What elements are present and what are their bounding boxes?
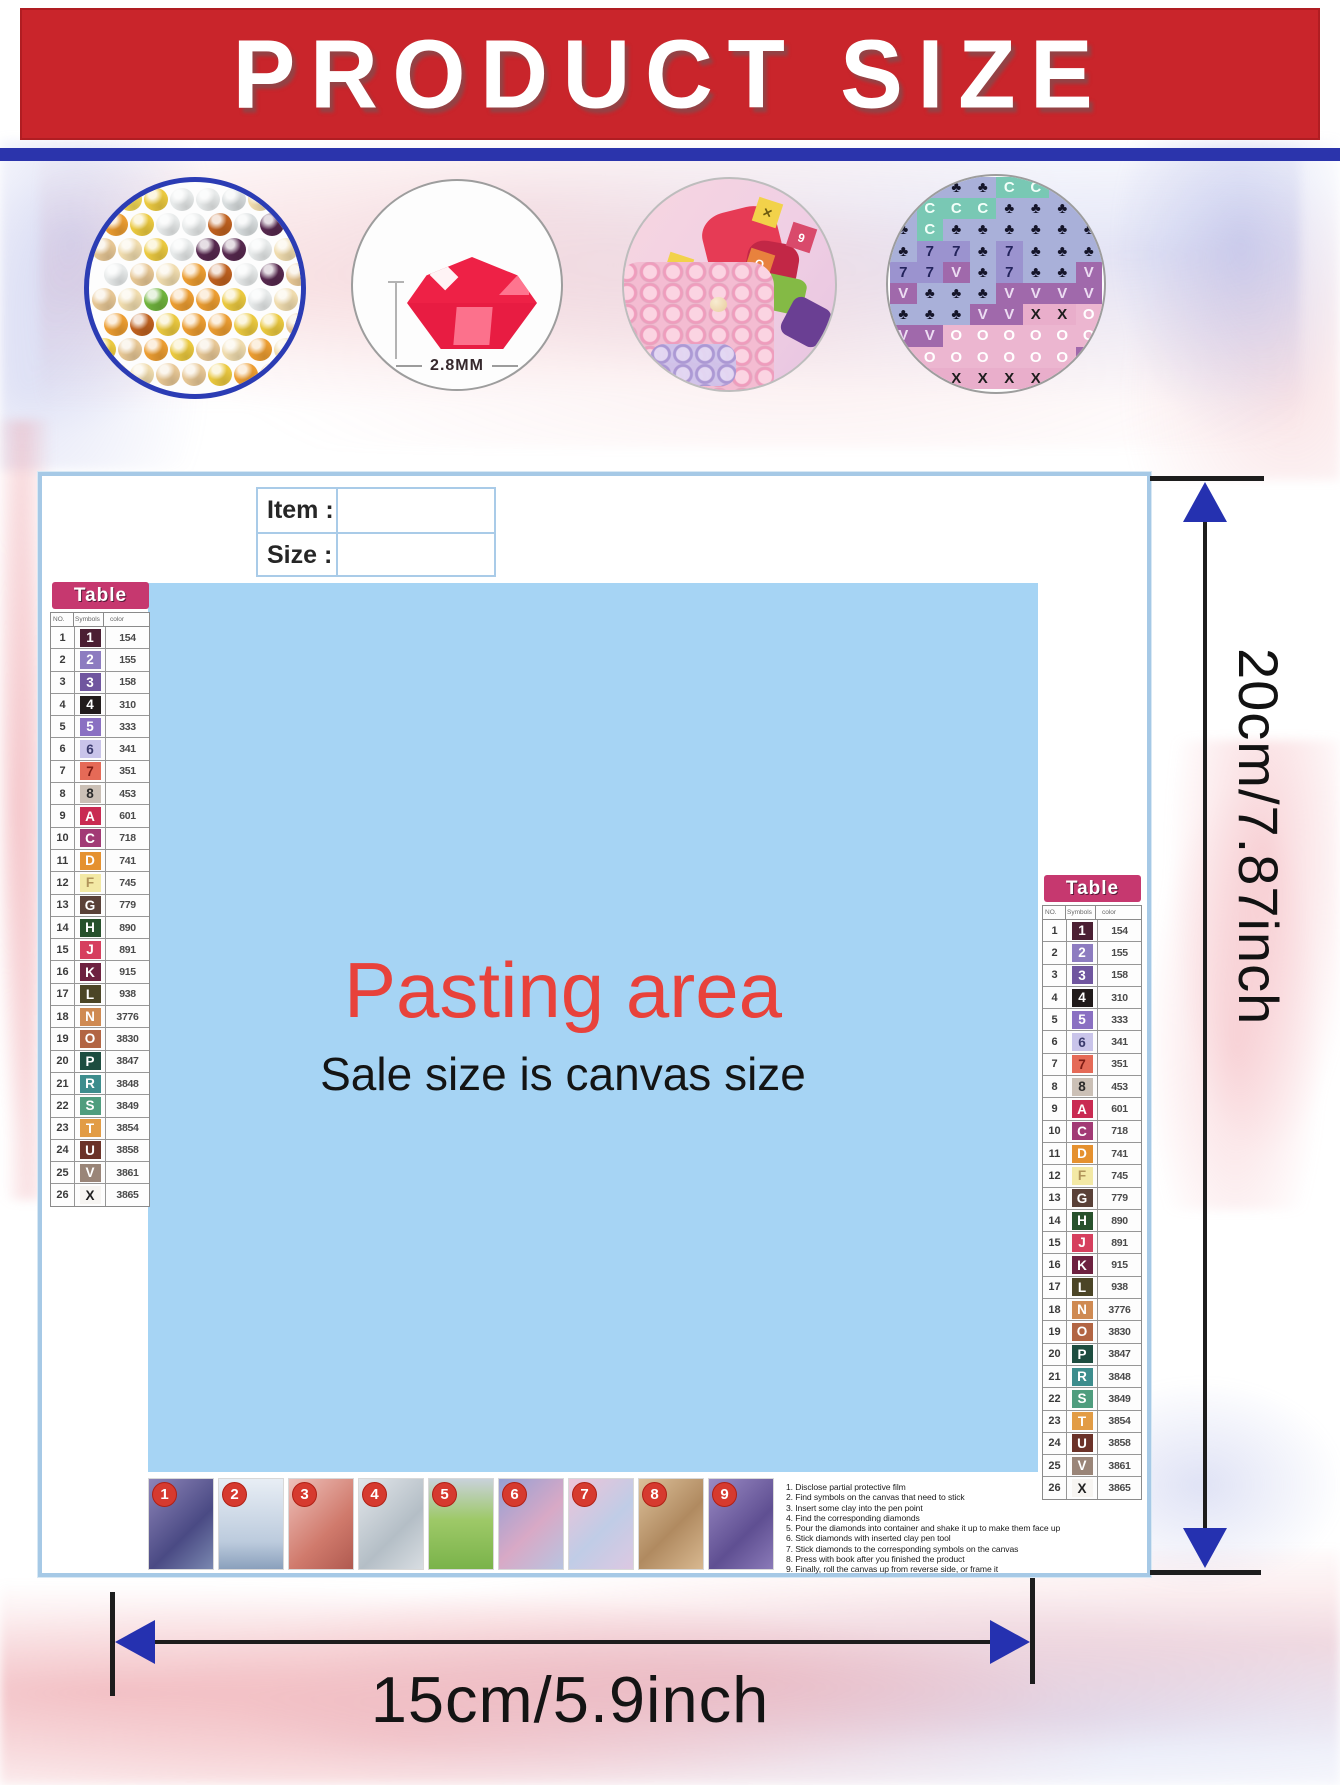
- color-table-title-right: Table: [1044, 875, 1141, 902]
- color-table-row: 16K915: [51, 961, 149, 983]
- color-table-symbol: R: [75, 1073, 106, 1094]
- diamond-bead: [144, 188, 168, 211]
- color-table-code: 718: [1098, 1121, 1141, 1142]
- color-table-symbol: 4: [1067, 987, 1098, 1008]
- color-table-symbol-chip: L: [1072, 1278, 1093, 1296]
- item-row: Item :: [258, 489, 494, 534]
- color-table-code: 3776: [1098, 1299, 1141, 1320]
- diamond-bead: [196, 188, 220, 211]
- color-table-row: 66341: [1043, 1031, 1141, 1053]
- color-table-code: 453: [106, 783, 149, 804]
- diamond-bead: [92, 338, 116, 361]
- color-table-no: 24: [1043, 1433, 1067, 1454]
- diamond-bead: [248, 188, 272, 211]
- color-table-symbol: L: [1067, 1277, 1098, 1298]
- step-thumbnail: 6: [498, 1478, 564, 1570]
- symbol-cell: X: [890, 368, 917, 389]
- instruction-line: 3. Insert some clay into the pen point: [786, 1503, 1048, 1513]
- diamond-bead: [182, 263, 206, 286]
- symbol-cell: C: [917, 219, 944, 240]
- color-table-row: 22155: [51, 649, 149, 671]
- diamond-bead: [208, 313, 232, 336]
- item-label: Item :: [258, 489, 338, 532]
- color-table-code: 3849: [106, 1095, 149, 1116]
- step-number-badge: 7: [572, 1482, 597, 1507]
- color-table-symbol-chip: X: [80, 1186, 101, 1204]
- symbol-row: XXXXXXXY: [890, 368, 1102, 389]
- symbol-cell: ♣: [1076, 241, 1103, 262]
- color-table-symbol: S: [1067, 1388, 1098, 1409]
- color-table-row: 20P3847: [1043, 1344, 1141, 1366]
- color-table-symbol-chip: 5: [80, 718, 101, 736]
- color-table-row: 19O3830: [51, 1028, 149, 1050]
- color-table-no: 18: [1043, 1299, 1067, 1320]
- divider-bar: [0, 148, 1340, 161]
- step-number-badge: 9: [712, 1482, 737, 1507]
- diamond-bead: [118, 338, 142, 361]
- step-number-badge: 4: [362, 1482, 387, 1507]
- color-table-no: 2: [51, 649, 75, 670]
- symbol-cell: 7: [996, 262, 1023, 283]
- color-table-header-cell: color: [1096, 906, 1141, 919]
- color-table-symbol-chip: 2: [80, 651, 101, 669]
- step-thumbnail: 5: [428, 1478, 494, 1570]
- color-table-code: 3854: [1098, 1411, 1141, 1432]
- color-table-symbol-chip: H: [80, 919, 101, 937]
- color-table-symbol: F: [75, 872, 106, 893]
- color-table-no: 13: [1043, 1188, 1067, 1209]
- color-table-row: 88453: [1043, 1076, 1141, 1098]
- diamond-bead: [170, 338, 194, 361]
- color-table-symbol: D: [75, 850, 106, 871]
- color-table-symbol-chip: 6: [1072, 1033, 1093, 1051]
- color-table-no: 26: [1043, 1477, 1067, 1498]
- color-table-code: 351: [1098, 1054, 1141, 1075]
- color-table-code: 601: [1098, 1098, 1141, 1119]
- height-dimension-label: 20cm/7.87inch: [1226, 648, 1291, 1208]
- item-value-cell: [338, 489, 494, 532]
- color-table-code: 745: [1098, 1165, 1141, 1186]
- color-table-no: 12: [51, 872, 75, 893]
- symbol-cell: O: [996, 347, 1023, 368]
- step-number-badge: 1: [152, 1482, 177, 1507]
- diamond-bead: [248, 238, 272, 261]
- symbol-cell: X: [970, 368, 997, 389]
- symbol-row: VVOOOOOO: [890, 325, 1102, 346]
- color-table-no: 5: [1043, 1009, 1067, 1030]
- color-table-code: 3858: [106, 1140, 149, 1161]
- color-table-symbol: C: [1067, 1121, 1098, 1142]
- color-table-symbol-chip: C: [1072, 1122, 1093, 1140]
- diamond-bead-row: [89, 188, 301, 213]
- symbol-cell: C: [917, 198, 944, 219]
- color-table-code: 779: [106, 895, 149, 916]
- color-table-no: 22: [51, 1095, 75, 1116]
- color-table-code: 155: [1098, 942, 1141, 963]
- color-table-no: 4: [1043, 987, 1067, 1008]
- symbol-cell: ♣: [1023, 219, 1050, 240]
- color-table-title-left: Table: [52, 582, 149, 609]
- background-texture: [1090, 140, 1340, 480]
- symbol-cell: ♣: [917, 304, 944, 325]
- color-table-symbol-chip: F: [80, 874, 101, 892]
- color-table-code: 891: [106, 939, 149, 960]
- color-table-row: 25V3861: [51, 1162, 149, 1184]
- symbol-cell: C: [970, 198, 997, 219]
- symbol-cell: ♣: [970, 241, 997, 262]
- diamond-bead: [156, 213, 180, 236]
- color-table-code: 779: [1098, 1188, 1141, 1209]
- color-table-code: 915: [1098, 1254, 1141, 1275]
- color-table-symbol: C: [75, 828, 106, 849]
- color-table-symbol: 7: [1067, 1054, 1098, 1075]
- color-table-symbol-chip: G: [1072, 1189, 1093, 1207]
- color-table-no: 4: [51, 694, 75, 715]
- diamond-bead: [234, 213, 258, 236]
- color-table-no: 9: [1043, 1098, 1067, 1119]
- color-table-symbol-chip: O: [80, 1030, 101, 1048]
- gem-size-photo: 2.8MM: [351, 179, 563, 391]
- color-table-row: 9A601: [51, 805, 149, 827]
- color-table-row: 11D741: [51, 850, 149, 872]
- color-table-code: 745: [106, 872, 149, 893]
- instruction-line: 5. Pour the diamonds into container and …: [786, 1523, 1048, 1533]
- color-table-symbol-chip: O: [1072, 1323, 1093, 1341]
- color-table-symbol-chip: N: [80, 1008, 101, 1026]
- diamond-bead-row: [101, 313, 306, 338]
- symbol-cell: 7: [917, 241, 944, 262]
- step-thumbnail: 2: [218, 1478, 284, 1570]
- vertical-dimension-line: [1203, 498, 1207, 1554]
- diamond-bead: [144, 338, 168, 361]
- color-table-row: 16K915: [1043, 1254, 1141, 1276]
- color-table-symbol: 6: [1067, 1031, 1098, 1052]
- measure-dash: [396, 365, 422, 367]
- symbol-row: ♣♣♣VVXXO: [890, 304, 1102, 325]
- color-table-no: 26: [51, 1184, 75, 1205]
- symbol-cell: ♣: [890, 198, 917, 219]
- color-table-no: 8: [51, 783, 75, 804]
- diamond-bead: [234, 313, 258, 336]
- diamond-bead: [92, 188, 116, 211]
- symbol-cell: ♣: [970, 262, 997, 283]
- symbol-cell: 7: [917, 262, 944, 283]
- symbol-cell: X: [1023, 368, 1050, 389]
- color-table-symbol: 7: [75, 761, 106, 782]
- color-table-code: 915: [106, 961, 149, 982]
- symbol-row: 77V♣7♣♣V: [890, 262, 1102, 283]
- diamond-bead: [130, 263, 154, 286]
- symbol-cell: ♣: [996, 219, 1023, 240]
- page-title: PRODUCT SIZE: [233, 18, 1108, 130]
- symbol-cell: O: [1023, 347, 1050, 368]
- diamond-bead: [118, 288, 142, 311]
- diamond-bead: [196, 288, 220, 311]
- symbol-cell: O: [1076, 325, 1103, 346]
- step-number-badge: 5: [432, 1482, 457, 1507]
- diamond-bead: [274, 338, 298, 361]
- product-size-infographic: PRODUCT SIZE 2.8MM ✕ 9 O ✕: [0, 0, 1340, 1785]
- diamond-bead: [222, 238, 246, 261]
- color-table-symbol-chip: 7: [80, 762, 101, 780]
- color-table-code: 154: [106, 627, 149, 648]
- color-table-row: 55333: [1043, 1009, 1141, 1031]
- symbol-cell: ♣: [917, 177, 944, 198]
- symbol-cell: V: [890, 283, 917, 304]
- symbol-row: ♣77♣7♣♣♣: [890, 241, 1102, 262]
- symbol-cell: ♣: [1049, 219, 1076, 240]
- diamond-bead: [118, 188, 142, 211]
- instruction-line: 6. Stick diamonds with inserted clay pen…: [786, 1533, 1048, 1543]
- arrow-up-icon: [1183, 482, 1227, 522]
- color-table-header-cell: NO.: [1043, 906, 1066, 919]
- color-table-symbol: H: [1067, 1210, 1098, 1231]
- color-table-no: 10: [1043, 1121, 1067, 1142]
- step-thumbnail: 4: [358, 1478, 424, 1570]
- symbol-cell: V: [996, 283, 1023, 304]
- color-table-symbol-chip: 7: [1072, 1055, 1093, 1073]
- color-table-row: 88453: [51, 783, 149, 805]
- symbol-cell: ♣: [970, 219, 997, 240]
- diamond-bead-row: [89, 238, 301, 263]
- step-number-badge: 2: [222, 1482, 247, 1507]
- gem-illustration: [407, 257, 537, 353]
- color-table-row: 11D741: [1043, 1143, 1141, 1165]
- color-table-code: 154: [1098, 920, 1141, 941]
- symbol-cell: C: [943, 198, 970, 219]
- color-table-row: 44310: [1043, 987, 1141, 1009]
- pasting-area-subtitle: Sale size is canvas size: [148, 1047, 978, 1101]
- symbol-cell: X: [943, 368, 970, 389]
- diamond-bead: [182, 213, 206, 236]
- color-table-row: 21R3848: [51, 1073, 149, 1095]
- pasting-area-title: Pasting area: [148, 945, 978, 1036]
- diamond-bead-row: [89, 288, 301, 313]
- color-table-no: 21: [1043, 1366, 1067, 1387]
- color-table-row: 15J891: [51, 939, 149, 961]
- color-table-no: 15: [1043, 1232, 1067, 1253]
- color-table-code: 3861: [1098, 1455, 1141, 1476]
- symbol-cell: O: [996, 325, 1023, 346]
- symbol-cell: O: [943, 325, 970, 346]
- color-table-row: 26X3865: [51, 1184, 149, 1205]
- diamond-bead: [208, 263, 232, 286]
- color-table-code: 351: [106, 761, 149, 782]
- color-table-symbol-chip: A: [1072, 1100, 1093, 1118]
- diamond-bead: [286, 213, 306, 236]
- picked-bead: [710, 297, 727, 312]
- color-table-no: 18: [51, 1006, 75, 1027]
- symbol-cell: ♣: [917, 283, 944, 304]
- color-table-header-cell: Symbols: [74, 613, 104, 626]
- color-table-row: 17L938: [51, 984, 149, 1006]
- color-table-symbol: O: [75, 1028, 106, 1049]
- color-table-symbol-chip: T: [80, 1119, 101, 1137]
- color-table-no: 24: [51, 1140, 75, 1161]
- diamond-bead: [222, 338, 246, 361]
- color-table-row: 17L938: [1043, 1277, 1141, 1299]
- color-table-symbol: O: [1067, 1321, 1098, 1342]
- color-table-header-row: NO.Symbolscolor: [51, 613, 149, 627]
- color-table-symbol: J: [1067, 1232, 1098, 1253]
- color-table-no: 8: [1043, 1076, 1067, 1097]
- symbol-cell: V: [890, 325, 917, 346]
- color-table-symbol: S: [75, 1095, 106, 1116]
- color-table-code: 341: [1098, 1031, 1141, 1052]
- symbol-cell: C: [996, 177, 1023, 198]
- color-table-symbol-chip: F: [1072, 1167, 1093, 1185]
- color-table-no: 3: [1043, 965, 1067, 986]
- diamond-bead: [248, 288, 272, 311]
- color-table-symbol-chip: 6: [80, 740, 101, 758]
- color-table-symbol: K: [75, 961, 106, 982]
- color-table-code: 718: [106, 828, 149, 849]
- color-table-row: 66341: [51, 738, 149, 760]
- color-table-no: 25: [51, 1162, 75, 1183]
- symbol-row: ♣C♣♣♣♣♣♣: [890, 219, 1102, 240]
- color-table-no: 20: [1043, 1344, 1067, 1365]
- symbol-cell: ♣: [1076, 198, 1103, 219]
- step-number-badge: 6: [502, 1482, 527, 1507]
- diamond-bead: [118, 238, 142, 261]
- color-table-row: 55333: [51, 716, 149, 738]
- instruction-line: 7. Stick diamonds to the corresponding s…: [786, 1544, 1048, 1554]
- color-table-symbol-chip: K: [1072, 1256, 1093, 1274]
- arrow-right-icon: [990, 1620, 1030, 1664]
- step-number-badge: 3: [292, 1482, 317, 1507]
- item-size-box: Item : Size :: [256, 487, 496, 577]
- color-table-row: 22S3849: [51, 1095, 149, 1117]
- color-table-symbol: X: [1067, 1477, 1098, 1498]
- color-table-code: 938: [1098, 1277, 1141, 1298]
- color-table-symbol-chip: R: [1072, 1368, 1093, 1386]
- step-number-badge: 8: [642, 1482, 667, 1507]
- symbol-canvas-photo: ♣♣♣♣CC♣♣♣CCC♣♣♣♣♣C♣♣♣♣♣♣♣77♣7♣♣♣77V♣7♣♣V…: [886, 174, 1106, 394]
- color-table-symbol: 5: [1067, 1009, 1098, 1030]
- color-table-symbol: G: [75, 895, 106, 916]
- color-table-symbol: R: [1067, 1366, 1098, 1387]
- instruction-line: 4. Find the corresponding diamonds: [786, 1513, 1048, 1523]
- color-table-no: 15: [51, 939, 75, 960]
- gem-dome: [407, 257, 537, 303]
- diamond-bead: [182, 363, 206, 386]
- color-table-code: 3830: [1098, 1321, 1141, 1342]
- color-table-row: 21R3848: [1043, 1366, 1141, 1388]
- diamond-bead: [170, 288, 194, 311]
- color-table-row: 18N3776: [51, 1006, 149, 1028]
- diamond-bead: [286, 313, 306, 336]
- symbol-cell: ♣: [1049, 262, 1076, 283]
- arrow-down-icon: [1183, 1528, 1227, 1568]
- diamond-bead: [260, 263, 284, 286]
- color-table-code: 3865: [106, 1184, 149, 1205]
- horizontal-dimension-tick-right: [1030, 1578, 1035, 1684]
- diamond-bead: [196, 238, 220, 261]
- symbol-cell: V: [970, 304, 997, 325]
- color-table-symbol: P: [1067, 1344, 1098, 1365]
- symbol-cell: ♣: [943, 304, 970, 325]
- color-table-symbol-chip: 3: [80, 673, 101, 691]
- gem-body: [407, 303, 537, 353]
- color-table-code: 3848: [106, 1073, 149, 1094]
- color-table-symbol: U: [1067, 1433, 1098, 1454]
- color-table-symbol-chip: 8: [1072, 1078, 1093, 1096]
- gem-facet-highlight: [430, 262, 459, 291]
- color-table-code: 601: [106, 805, 149, 826]
- color-table-row: 10C718: [1043, 1121, 1141, 1143]
- diamond-bead-grid: [89, 188, 301, 388]
- color-table-symbol-chip: R: [80, 1075, 101, 1093]
- step-thumbnail: 9: [708, 1478, 774, 1570]
- color-table-code: 158: [106, 672, 149, 693]
- diamond-bead: [208, 213, 232, 236]
- color-table-code: 3847: [106, 1051, 149, 1072]
- color-table-row: 23T3854: [1043, 1411, 1141, 1433]
- color-table-no: 6: [51, 738, 75, 759]
- banner: PRODUCT SIZE: [20, 8, 1320, 140]
- symbol-cell: ♣: [943, 177, 970, 198]
- diamond-bead: [260, 213, 284, 236]
- instruction-line: 8. Press with book after you finished th…: [786, 1554, 1048, 1564]
- diamond-bead: [234, 263, 258, 286]
- color-table-no: 11: [51, 850, 75, 871]
- color-table-no: 5: [51, 716, 75, 737]
- symbol-cell: ♣: [970, 283, 997, 304]
- bead-placement-photo: ✕ 9 O ✕: [622, 177, 837, 392]
- symbol-cell: V: [1076, 283, 1103, 304]
- diamond-bead: [104, 313, 128, 336]
- color-table-code: 891: [1098, 1232, 1141, 1253]
- color-table-code: 3849: [1098, 1388, 1141, 1409]
- symbol-cell: ♣: [1049, 241, 1076, 262]
- color-table-code: 3847: [1098, 1344, 1141, 1365]
- width-dimension-label: 15cm/5.9inch: [240, 1662, 900, 1737]
- color-table-row: 77351: [1043, 1054, 1141, 1076]
- color-table-row: 11154: [1043, 920, 1141, 942]
- color-table-header-cell: Symbols: [1066, 906, 1096, 919]
- color-table-row: 14H890: [1043, 1210, 1141, 1232]
- color-table-symbol: 2: [75, 649, 106, 670]
- color-table-symbol-chip: D: [1072, 1145, 1093, 1163]
- color-table-code: 741: [106, 850, 149, 871]
- step-thumbnail: 8: [638, 1478, 704, 1570]
- symbol-cell: ♣: [943, 219, 970, 240]
- color-table-symbol: P: [75, 1051, 106, 1072]
- diamond-bead: [156, 313, 180, 336]
- color-table-symbol: T: [75, 1118, 106, 1139]
- color-table-symbol-chip: V: [80, 1164, 101, 1182]
- color-table-symbol: T: [1067, 1411, 1098, 1432]
- diamond-bead: [170, 238, 194, 261]
- symbol-cell: O: [970, 325, 997, 346]
- color-table-no: 1: [51, 627, 75, 648]
- color-table-row: 24U3858: [1043, 1433, 1141, 1455]
- color-table-no: 20: [51, 1051, 75, 1072]
- color-table-symbol-chip: J: [1072, 1234, 1093, 1252]
- color-table-symbol: K: [1067, 1254, 1098, 1275]
- color-table-symbol-chip: 5: [1072, 1011, 1093, 1029]
- diamond-bead: [286, 263, 306, 286]
- color-table-symbol-chip: 2: [1072, 944, 1093, 962]
- diamond-bead: [92, 288, 116, 311]
- color-table-symbol: V: [75, 1162, 106, 1183]
- symbol-cell: ♣: [1049, 198, 1076, 219]
- color-table-symbol-chip: 4: [80, 696, 101, 714]
- color-table-symbol-chip: K: [80, 963, 101, 981]
- color-table-symbol: 8: [1067, 1076, 1098, 1097]
- color-table-symbol: G: [1067, 1188, 1098, 1209]
- color-table-symbol: 8: [75, 783, 106, 804]
